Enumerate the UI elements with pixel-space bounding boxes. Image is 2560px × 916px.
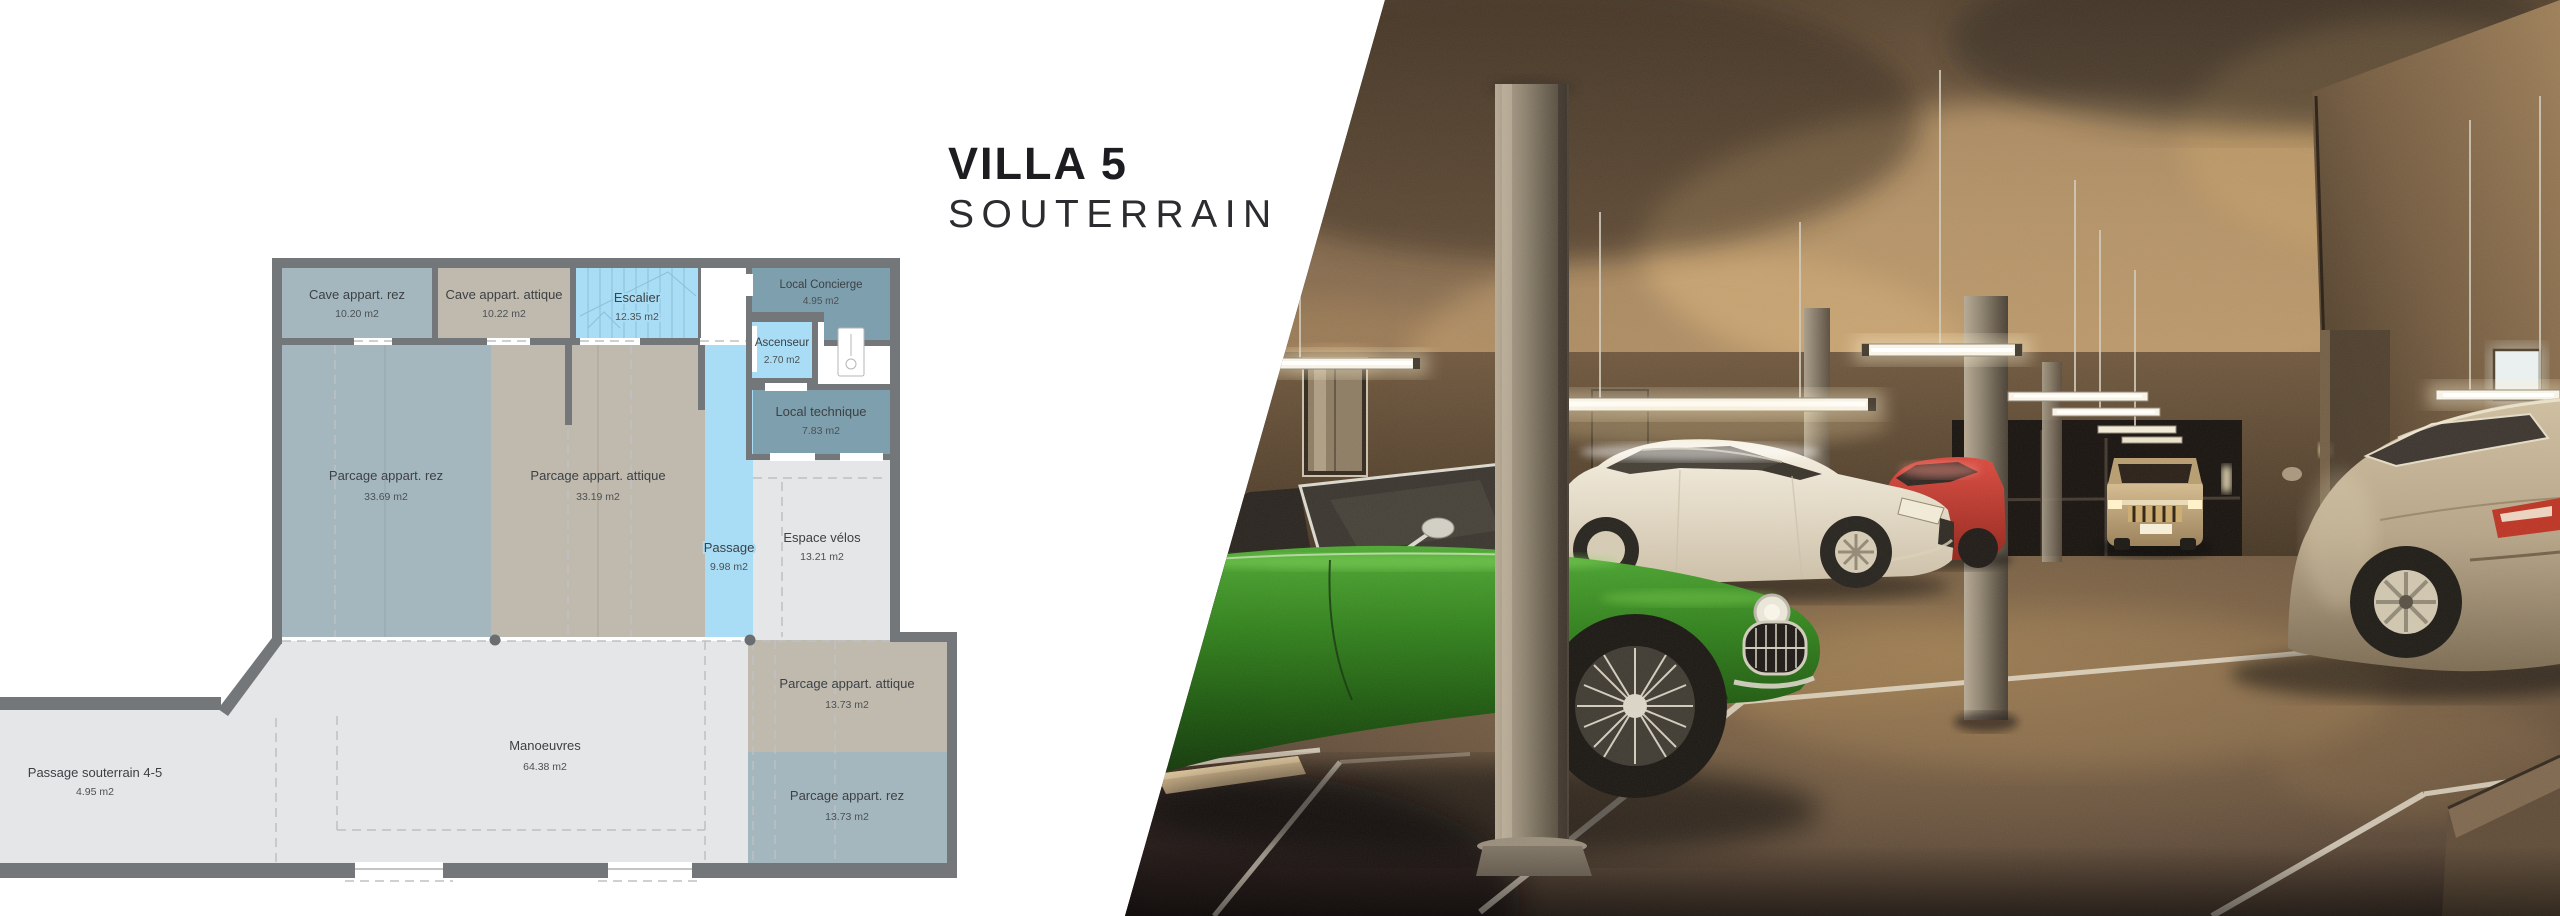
- label-manoeuvres: Manoeuvres: [509, 738, 581, 753]
- room-espace-velos: [753, 460, 890, 640]
- svg-text:13.73 m2: 13.73 m2: [825, 811, 869, 823]
- svg-text:4.95 m2: 4.95 m2: [803, 296, 840, 307]
- column-dot-1: [490, 635, 501, 646]
- room-ascenseur: [752, 322, 812, 378]
- svg-text:2.70 m2: 2.70 m2: [764, 355, 801, 366]
- concrete-grain: [1125, 0, 2560, 916]
- room-parcage-rez-2: [748, 752, 947, 863]
- room-passage: [705, 345, 753, 637]
- wall-left: [272, 258, 282, 644]
- label-parcage-attique: Parcage appart. attique: [530, 468, 665, 483]
- wall-bottom-3: [692, 863, 957, 878]
- wall-step: [890, 632, 957, 642]
- presentation-page: VILLA 5 SOUTERRAIN: [0, 0, 2560, 916]
- label-passage: Passage: [704, 540, 755, 555]
- svg-text:12.35 m2: 12.35 m2: [615, 311, 659, 323]
- column-dot-2: [745, 635, 756, 646]
- svg-text:13.21 m2: 13.21 m2: [800, 551, 844, 563]
- label-parcage-attique-2: Parcage appart. attique: [779, 676, 914, 691]
- svg-text:7.83 m2: 7.83 m2: [802, 425, 840, 437]
- label-technique: Local technique: [775, 404, 866, 419]
- label-parcage-rez-2: Parcage appart. rez: [790, 788, 904, 803]
- svg-text:33.69 m2: 33.69 m2: [364, 491, 408, 503]
- wall-top: [272, 258, 900, 268]
- room-local-technique: [752, 390, 890, 454]
- label-escalier: Escalier: [614, 290, 661, 305]
- floor-plan: Cave appart. rez 10.20 m2 Cave appart. a…: [0, 250, 965, 916]
- wall-bottom-2: [443, 863, 608, 878]
- room-cave-rez: [282, 268, 432, 338]
- label-passage-souterrain: Passage souterrain 4-5: [28, 765, 162, 780]
- wall-right-low: [947, 632, 957, 878]
- wall-stub-1: [565, 345, 572, 425]
- bottom-vignette: [1125, 846, 2560, 916]
- svg-text:4.95 m2: 4.95 m2: [76, 786, 114, 798]
- svg-text:13.73 m2: 13.73 m2: [825, 699, 869, 711]
- svg-text:10.22 m2: 10.22 m2: [482, 308, 526, 320]
- svg-text:10.20 m2: 10.20 m2: [335, 308, 379, 320]
- label-concierge: Local Concierge: [779, 279, 862, 291]
- wall-ext-top: [0, 697, 221, 710]
- room-parcage-attique-2: [748, 640, 947, 752]
- svg-text:9.98 m2: 9.98 m2: [710, 561, 748, 573]
- label-parcage-rez: Parcage appart. rez: [329, 468, 443, 483]
- label-cave-rez: Cave appart. rez: [309, 287, 405, 302]
- wall-bottom-1: [0, 863, 355, 878]
- label-espace-velos: Espace vélos: [783, 530, 861, 545]
- garage-photo: [1125, 0, 2560, 916]
- wall-stub-2: [698, 345, 705, 410]
- label-ascenseur: Ascenseur: [755, 337, 810, 349]
- technical-fixture: [838, 328, 864, 376]
- svg-text:64.38 m2: 64.38 m2: [523, 761, 567, 773]
- label-cave-attique: Cave appart. attique: [445, 287, 562, 302]
- wall-right-top: [890, 258, 900, 642]
- room-cave-attique: [438, 268, 570, 338]
- svg-text:33.19 m2: 33.19 m2: [576, 491, 620, 503]
